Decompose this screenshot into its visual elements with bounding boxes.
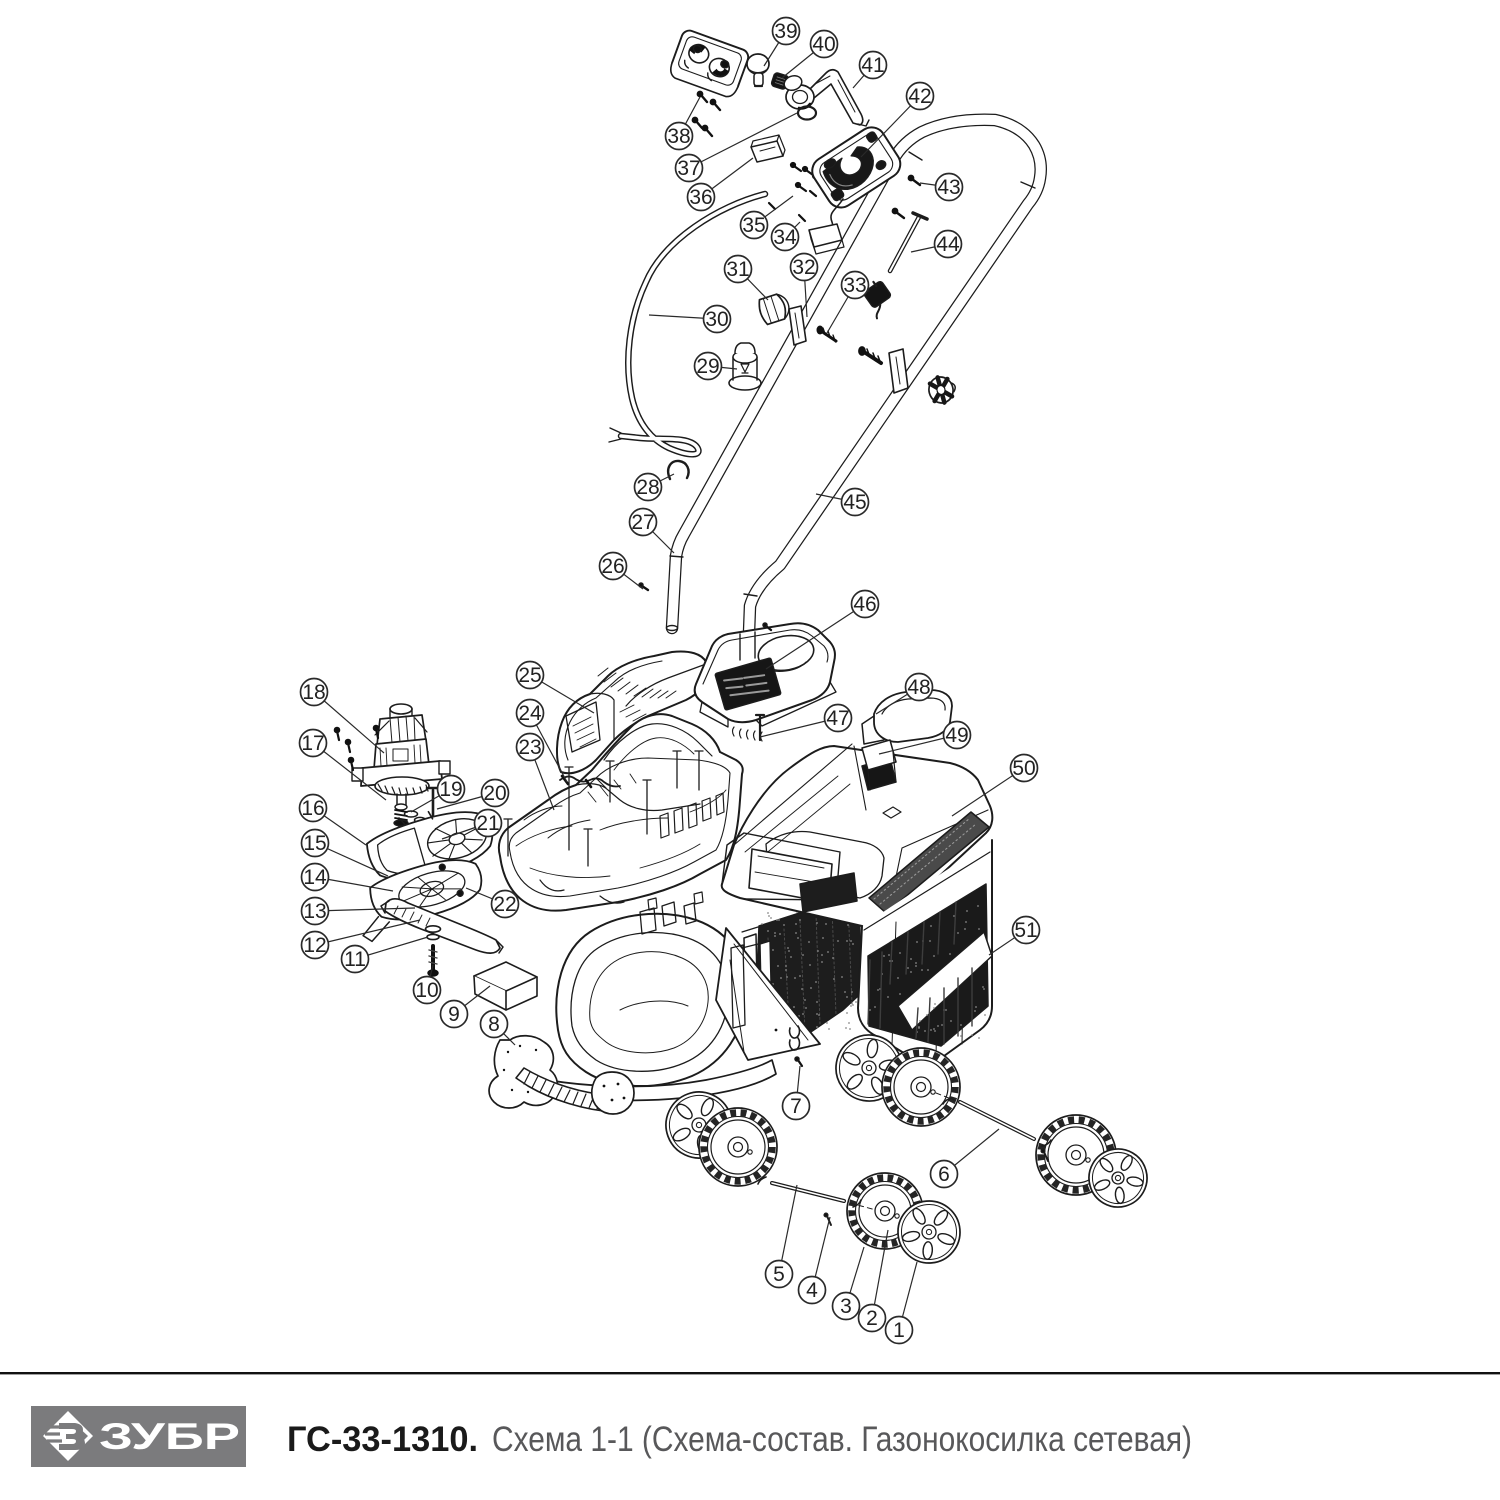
svg-text:51: 51 [1014,919,1037,942]
svg-text:31: 31 [726,258,749,281]
svg-text:23: 23 [518,736,541,759]
svg-text:ГС-33-1310.Схема 1-1 (Схема-со: ГС-33-1310.Схема 1-1 (Схема-состав. Газо… [287,1420,1192,1459]
svg-text:38: 38 [667,125,690,148]
svg-text:30: 30 [705,308,728,331]
svg-text:50: 50 [1012,757,1035,780]
svg-text:36: 36 [689,186,712,209]
svg-text:11: 11 [344,948,366,971]
svg-text:6: 6 [938,1163,950,1186]
svg-text:48: 48 [907,676,930,699]
svg-text:ЗУБР: ЗУБР [99,1416,240,1457]
svg-text:39: 39 [774,20,797,43]
svg-text:40: 40 [812,33,835,56]
svg-text:4: 4 [806,1279,818,1302]
svg-text:35: 35 [742,214,765,237]
svg-text:13: 13 [303,900,326,923]
svg-text:25: 25 [518,664,541,687]
svg-text:24: 24 [518,702,542,725]
svg-text:33: 33 [843,274,866,297]
svg-text:22: 22 [493,893,516,916]
svg-text:15: 15 [303,832,326,855]
svg-text:49: 49 [945,724,968,747]
svg-text:8: 8 [488,1013,500,1036]
svg-text:42: 42 [908,85,931,108]
svg-text:20: 20 [483,782,506,805]
svg-text:28: 28 [636,476,659,499]
svg-text:45: 45 [843,491,866,514]
svg-text:43: 43 [937,176,960,199]
svg-text:9: 9 [448,1003,460,1026]
svg-text:44: 44 [936,233,960,256]
svg-text:46: 46 [853,593,876,616]
svg-text:26: 26 [601,555,624,578]
svg-text:5: 5 [773,1263,785,1286]
svg-text:10: 10 [415,979,438,1002]
svg-text:3: 3 [840,1295,852,1318]
svg-text:16: 16 [301,797,324,820]
svg-text:2: 2 [866,1307,878,1330]
svg-text:29: 29 [696,355,719,378]
svg-text:47: 47 [826,707,849,730]
svg-text:34: 34 [773,226,797,249]
svg-text:37: 37 [677,157,700,180]
svg-text:18: 18 [302,681,325,704]
svg-text:14: 14 [303,866,327,889]
svg-text:41: 41 [861,54,884,77]
svg-text:19: 19 [439,778,462,801]
svg-text:21: 21 [476,812,499,835]
svg-text:27: 27 [631,511,654,534]
svg-text:1: 1 [893,1319,905,1342]
svg-text:17: 17 [301,732,324,755]
svg-text:7: 7 [790,1095,802,1118]
svg-text:32: 32 [792,256,815,279]
svg-text:12: 12 [303,934,326,957]
